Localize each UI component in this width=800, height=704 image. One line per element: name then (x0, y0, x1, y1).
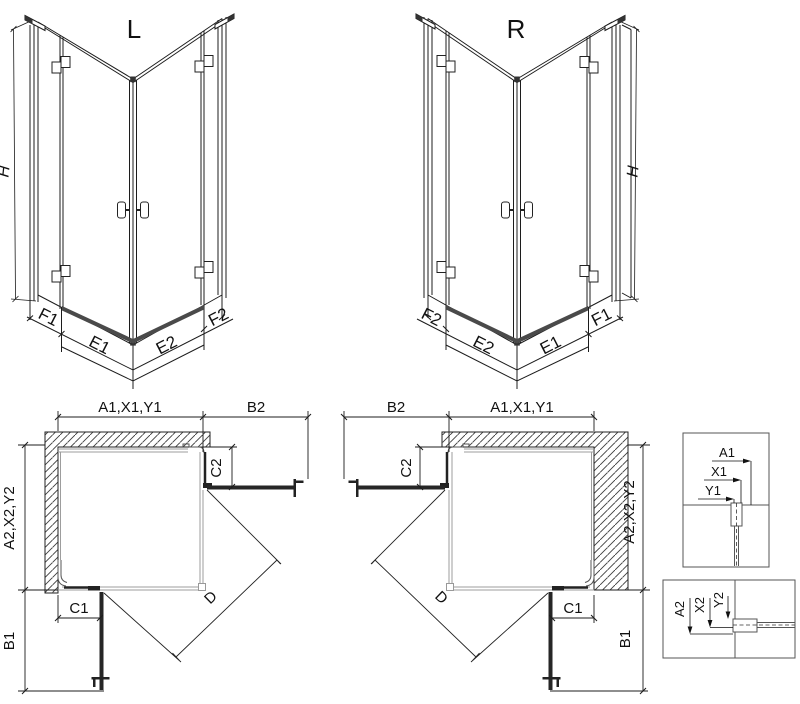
plan-right-door-width-dim: B2 (387, 399, 405, 416)
detail-top-dim-x1: X1 (711, 464, 727, 479)
plan-right-depth-dim: A2,X2,Y2 (621, 480, 638, 543)
right-plan-view (341, 411, 650, 694)
detail-top-dim-y1: Y1 (705, 483, 721, 498)
detail-bottom-dim-a2: A2 (672, 601, 687, 617)
plan-right-door-depth-dim: B1 (617, 630, 634, 648)
base-dim-f1-right: F1 (588, 304, 614, 330)
base-dim-f2-right: F2 (418, 304, 444, 330)
plan-right-fixed-side-dim: C2 (398, 458, 415, 477)
plan-left-depth-dim: A2,X2,Y2 (1, 486, 18, 549)
left-view-title: L (127, 14, 141, 44)
detail-top-dim-a1: A1 (719, 445, 735, 460)
base-dim-e1-right: E1 (537, 332, 564, 358)
right-return-panel (622, 25, 631, 298)
drawing-canvas: L R H H F1 E1 E2 F2 F2 E2 E1 F1 A1,X1,Y1… (0, 0, 800, 704)
plan-left-width-dim: A1,X1,Y1 (98, 399, 161, 416)
left-plan-walls (45, 432, 210, 593)
height-dim-label-left: H (0, 164, 14, 178)
detail-bottom-dim-x2: X2 (692, 597, 707, 613)
left-plan-view (18, 411, 311, 694)
right-view-title: R (507, 14, 526, 44)
right-plan-walls (442, 432, 628, 590)
detail-bottom-dim-y2: Y2 (711, 592, 726, 608)
plan-right-width-dim: A1,X1,Y1 (490, 399, 553, 416)
plan-right-fixed-front-dim: C1 (563, 600, 582, 617)
right-3d-view (416, 14, 640, 389)
wall-profile-detail-bottom (663, 580, 795, 658)
left-3d-view (11, 14, 235, 389)
shower-enclosure-technical-drawing: L R H H F1 E1 E2 F2 F2 E2 E1 F1 A1,X1,Y1… (0, 0, 800, 704)
base-dim-e2-left: E2 (153, 332, 180, 358)
base-dim-e1-left: E1 (86, 332, 113, 358)
plan-left-door-depth-dim: B1 (1, 632, 18, 650)
height-dim-label-right: H (624, 164, 642, 178)
plan-left-door-width-dim: B2 (247, 399, 265, 416)
plan-left-fixed-side-dim: C2 (208, 458, 225, 477)
base-dim-e2-right: E2 (470, 332, 497, 358)
base-dim-f2-left: F2 (205, 304, 231, 330)
plan-left-fixed-front-dim: C1 (69, 600, 88, 617)
base-dim-f1-left: F1 (35, 304, 61, 330)
